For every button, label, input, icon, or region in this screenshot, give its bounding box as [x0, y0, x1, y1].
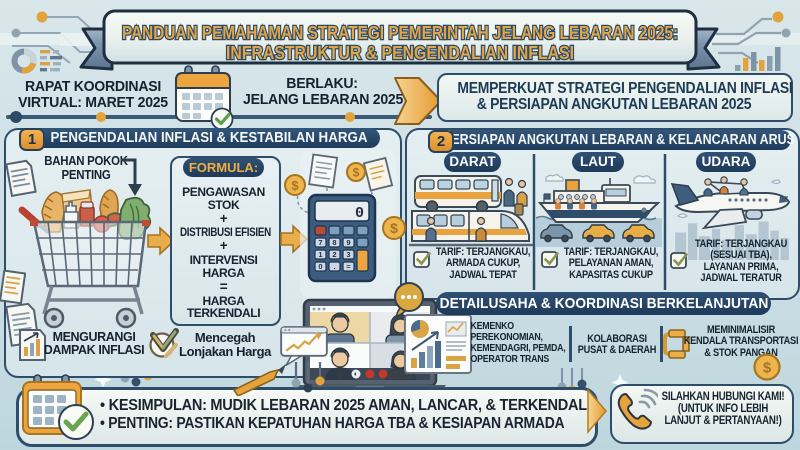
- svg-text:9: 9: [346, 238, 350, 247]
- svg-text:0: 0: [318, 262, 322, 271]
- svg-text:$: $: [763, 360, 772, 377]
- svg-text:$: $: [353, 166, 360, 180]
- svg-text:8: 8: [332, 238, 336, 247]
- svg-text:7: 7: [318, 238, 322, 247]
- svg-text:PANDUAN PEMAHAMAN STRATEGI PEM: PANDUAN PEMAHAMAN STRATEGI PEMERINTAH JE…: [122, 23, 678, 43]
- svg-text:.: .: [333, 262, 335, 271]
- svg-text:0: 0: [355, 205, 364, 222]
- svg-text:INFRASTRUKTUR & PENGENDALIAN I: INFRASTRUKTUR & PENGENDALIAN INFLASI: [226, 43, 574, 63]
- svg-text:$: $: [390, 220, 398, 236]
- svg-text:2: 2: [332, 250, 336, 259]
- svg-text:3: 3: [346, 250, 350, 259]
- svg-text:1: 1: [318, 250, 322, 259]
- svg-text:=: =: [346, 262, 351, 271]
- svg-text:$: $: [291, 178, 299, 193]
